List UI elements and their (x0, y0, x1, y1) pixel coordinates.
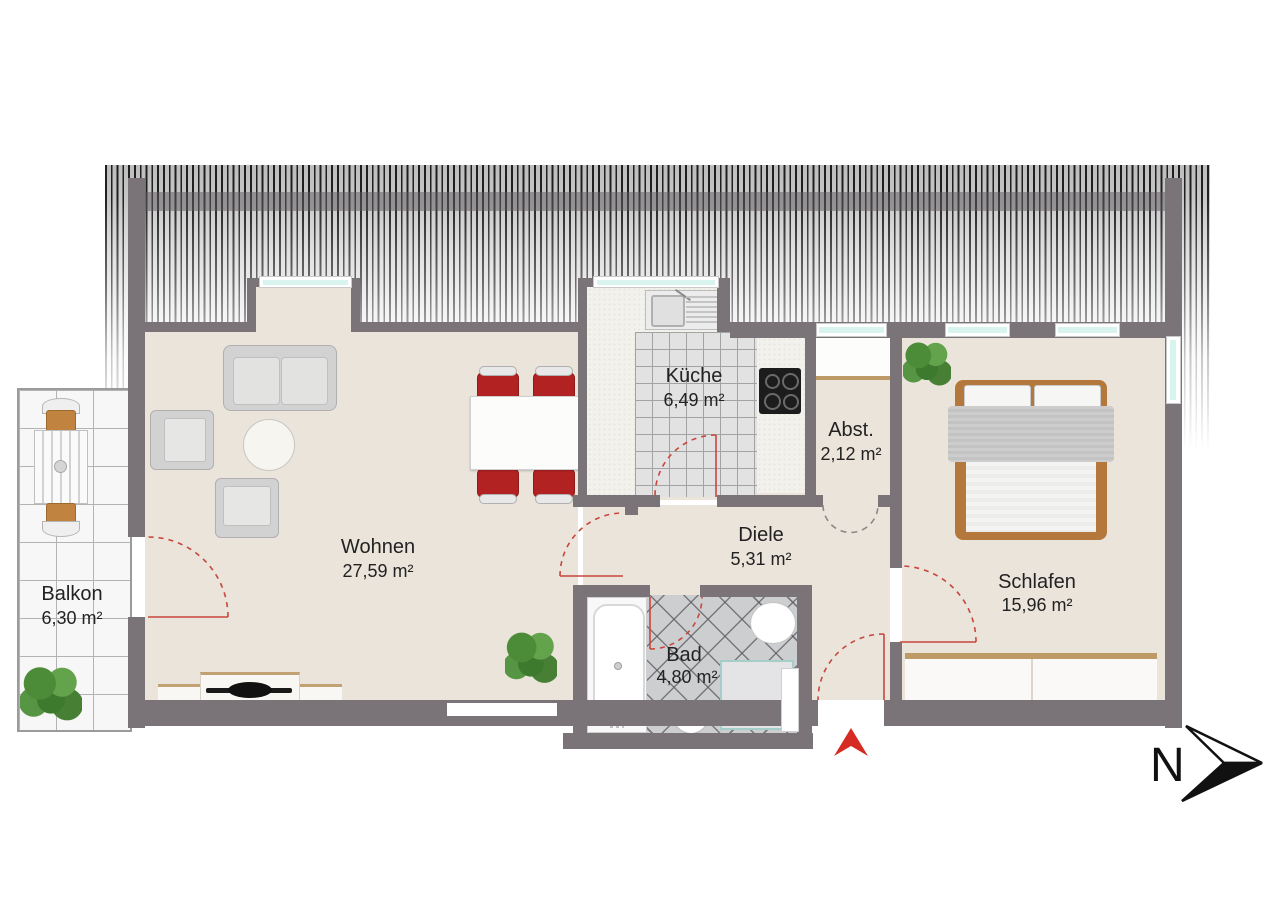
room-area-balkon: 6,30 m² (41, 608, 102, 629)
window-glass (1170, 340, 1176, 400)
wall (128, 178, 145, 537)
coffee-table (243, 419, 295, 471)
window-glass (948, 327, 1007, 333)
wall (578, 278, 587, 507)
wall (128, 322, 249, 332)
wardrobe-divider (1031, 659, 1033, 700)
cooktop-burner (764, 393, 781, 410)
room-label-schlafen: Schlafen (998, 571, 1076, 594)
room-area-schlafen: 15,96 m² (1001, 595, 1072, 616)
bed-sheet (966, 462, 1096, 532)
kitchen-drainer (686, 296, 717, 323)
dining-chair-back (535, 494, 573, 504)
balcony-chair-top-seat (46, 410, 76, 432)
room-label-wohnen: Wohnen (341, 536, 415, 559)
room-label-balkon: Balkon (41, 583, 102, 606)
dining-chair-back (479, 494, 517, 504)
entrance-opening (818, 700, 884, 726)
room-label-abst: Abst. (828, 419, 874, 442)
room-area-abst: 2,12 m² (820, 444, 881, 465)
north-arrow-lower (1182, 763, 1262, 801)
room-label-kueche: Küche (666, 365, 723, 388)
north-arrow-upper (1186, 726, 1262, 763)
window-glass (263, 280, 348, 285)
bed-blanket (948, 406, 1114, 462)
wall (573, 495, 660, 507)
bedroom-plant (903, 341, 951, 389)
dining-chair-back (535, 366, 573, 376)
floor-plan: N Balkon 6,30 m² Wohnen 27,59 m² Küche 6… (0, 0, 1280, 905)
room-label-diele: Diele (738, 524, 784, 547)
balcony-plant (20, 666, 82, 724)
kitchen-counter-left (587, 287, 635, 497)
balcony-table-knob (54, 460, 67, 473)
entrance-arrow (834, 728, 868, 756)
kitchen-sink-basin (651, 295, 685, 327)
wall-niche (447, 703, 557, 716)
window-glass (1058, 327, 1117, 333)
room-area-kueche: 6,49 m² (663, 390, 724, 411)
wall (1165, 178, 1182, 728)
wall (360, 322, 580, 332)
wall (797, 585, 812, 735)
room-area-bad: 4,80 m² (656, 667, 717, 688)
sofa-cushion (281, 357, 328, 405)
window-glass (819, 327, 884, 333)
storage-cabinet (816, 332, 890, 380)
wall (128, 700, 1182, 726)
room-area-diele: 5,31 m² (730, 549, 791, 570)
roof-wall-shadow-band (128, 192, 1182, 211)
room-area-wohnen: 27,59 m² (342, 561, 413, 582)
living-room-plant (505, 630, 557, 688)
cooktop-burner (782, 373, 799, 390)
dining-table (470, 396, 584, 470)
wall (890, 642, 902, 702)
cooktop-burner (765, 374, 780, 389)
window-glass (597, 280, 715, 285)
room-wohnen-bay-floor (254, 285, 353, 335)
room-label-bad: Bad (666, 644, 702, 667)
armchair-seat (223, 486, 271, 526)
bath-recess (781, 668, 799, 732)
wall (805, 495, 823, 507)
wall (563, 733, 813, 749)
armchair-seat (164, 418, 206, 462)
cooktop-burner (783, 394, 799, 410)
north-label: N (1150, 739, 1185, 792)
wall (573, 585, 587, 735)
wall (805, 322, 816, 507)
dining-chair-back (479, 366, 517, 376)
toilet (750, 602, 796, 644)
wall (700, 585, 812, 597)
sofa-cushion (233, 357, 280, 405)
wall (625, 507, 638, 515)
tv-screen (228, 682, 272, 698)
balcony-chair-bottom (42, 521, 80, 537)
wall (351, 278, 360, 332)
wall (717, 495, 816, 507)
wall (890, 322, 902, 568)
kitchen-tile-floor (635, 332, 757, 497)
bathtub-drain (614, 662, 622, 670)
